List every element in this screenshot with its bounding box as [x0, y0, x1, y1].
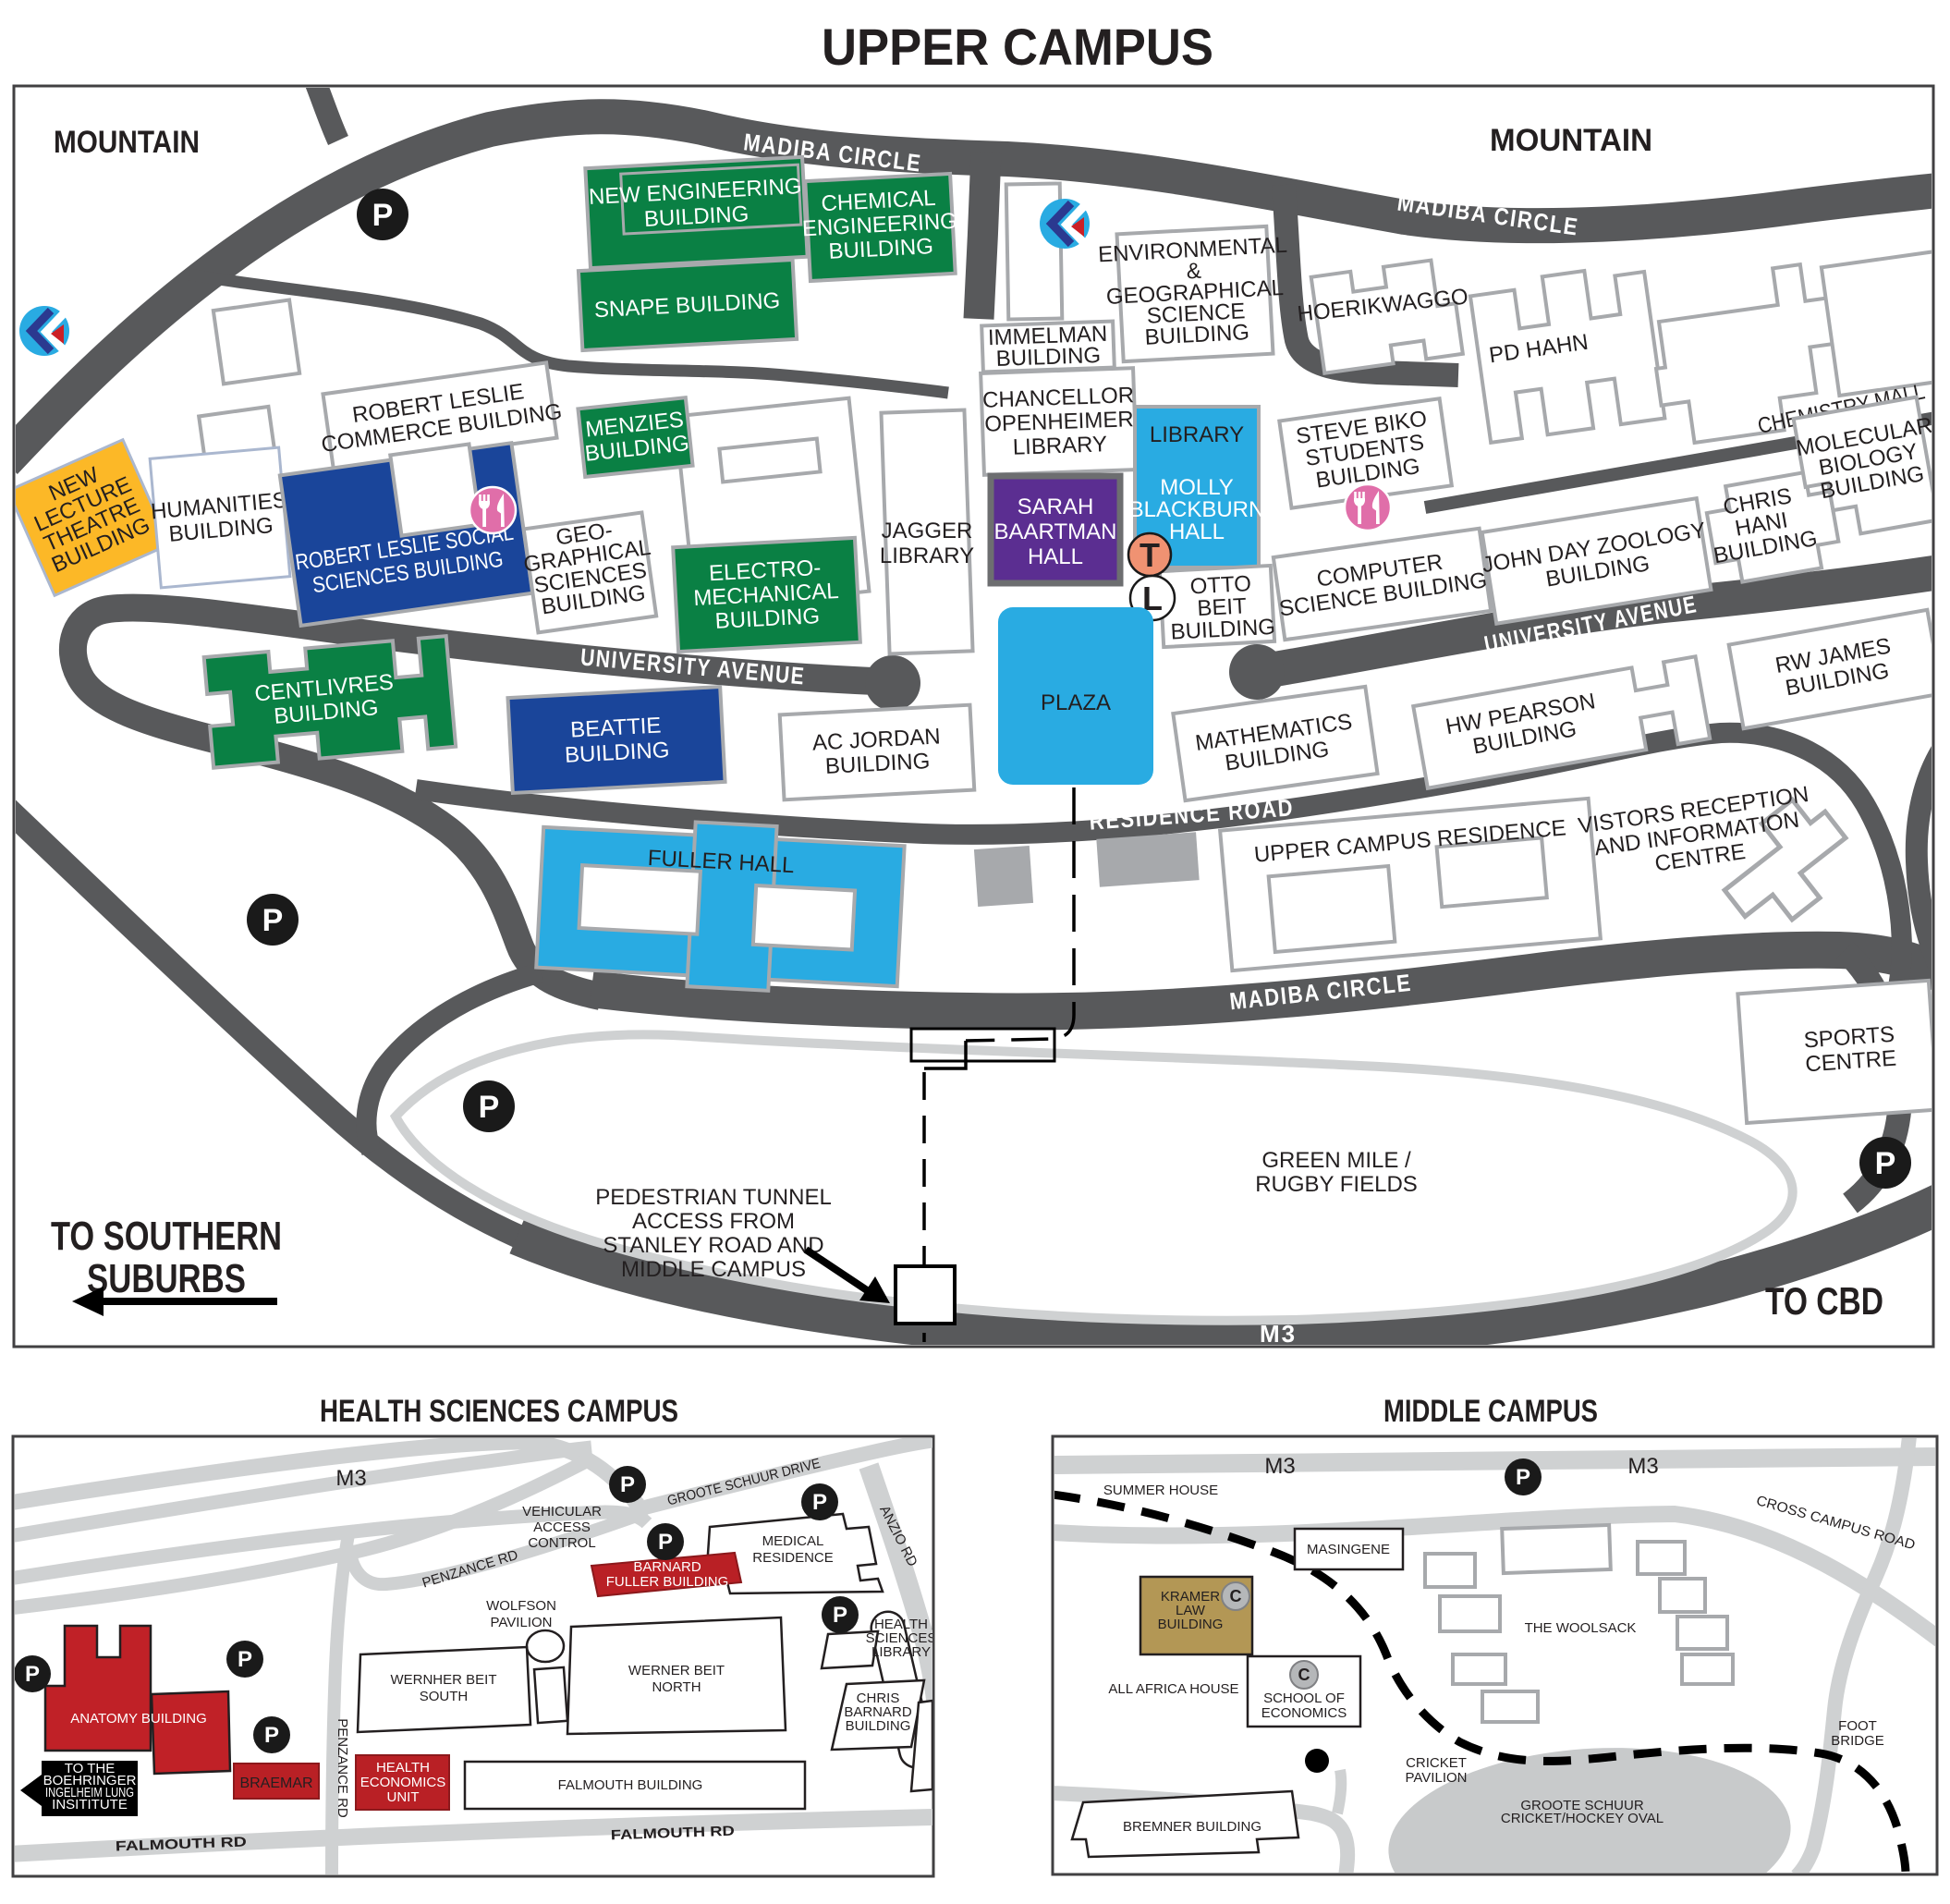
- svg-text:GREEN MILE /RUGBY FIELDS: GREEN MILE /RUGBY FIELDS: [1255, 1148, 1418, 1197]
- svg-text:WOLFSONPAVILION: WOLFSONPAVILION: [486, 1598, 556, 1630]
- svg-text:P: P: [372, 198, 394, 233]
- svg-text:VEHICULARACCESSCONTROL: VEHICULARACCESSCONTROL: [522, 1504, 602, 1551]
- svg-text:MIDDLE CAMPUS: MIDDLE CAMPUS: [1383, 1394, 1598, 1429]
- svg-text:MOUNTAIN: MOUNTAIN: [54, 125, 200, 160]
- svg-text:BEATTIEBUILDING: BEATTIEBUILDING: [563, 713, 670, 768]
- svg-text:P: P: [620, 1472, 635, 1497]
- svg-text:ANATOMY BUILDING: ANATOMY BUILDING: [70, 1711, 207, 1727]
- svg-text:P: P: [1875, 1146, 1896, 1181]
- svg-text:M3: M3: [1264, 1454, 1295, 1479]
- svg-text:P: P: [833, 1603, 847, 1628]
- svg-text:PLAZA: PLAZA: [1041, 690, 1111, 715]
- svg-text:BREMNER BUILDING: BREMNER BUILDING: [1123, 1819, 1261, 1835]
- svg-text:AC JORDANBUILDING: AC JORDANBUILDING: [811, 724, 942, 779]
- svg-text:SUMMER HOUSE: SUMMER HOUSE: [1103, 1483, 1218, 1498]
- svg-text:P: P: [658, 1530, 673, 1555]
- svg-text:M3: M3: [335, 1466, 366, 1491]
- svg-text:M3: M3: [1627, 1454, 1658, 1479]
- svg-text:JAGGERLIBRARY: JAGGERLIBRARY: [880, 519, 974, 568]
- svg-text:GROOTE SCHUURCRICKET/HOCKEY OV: GROOTE SCHUURCRICKET/HOCKEY OVAL: [1501, 1798, 1664, 1826]
- svg-text:P: P: [262, 903, 284, 938]
- svg-text:TO CBD: TO CBD: [1765, 1279, 1883, 1323]
- svg-text:UPPER CAMPUS: UPPER CAMPUS: [822, 18, 1213, 76]
- svg-text:P: P: [264, 1723, 279, 1748]
- svg-text:MASINGENE: MASINGENE: [1307, 1542, 1390, 1557]
- svg-text:MOUNTAIN: MOUNTAIN: [1490, 123, 1652, 158]
- svg-text:P: P: [25, 1662, 40, 1687]
- svg-text:SCHOOL OFECONOMICS: SCHOOL OFECONOMICS: [1261, 1690, 1347, 1721]
- svg-text:BRAEMAR: BRAEMAR: [239, 1776, 312, 1791]
- svg-text:LIBRARY: LIBRARY: [1150, 422, 1244, 447]
- svg-text:PENZANCE RD: PENZANCE RD: [335, 1718, 350, 1818]
- svg-text:P: P: [1516, 1465, 1530, 1490]
- svg-text:FOOTBRIDGE: FOOTBRIDGE: [1831, 1718, 1884, 1749]
- svg-text:IMMELMANBUILDING: IMMELMANBUILDING: [987, 322, 1108, 372]
- svg-text:SPORTSCENTRE: SPORTSCENTRE: [1803, 1022, 1897, 1078]
- svg-text:CRICKETPAVILION: CRICKETPAVILION: [1406, 1755, 1468, 1786]
- svg-text:HEALTHSCIENCESLIBRARY: HEALTHSCIENCESLIBRARY: [866, 1617, 937, 1660]
- svg-text:P: P: [479, 1090, 500, 1125]
- svg-text:T: T: [1140, 536, 1160, 574]
- svg-text:P: P: [812, 1490, 827, 1515]
- svg-text:THE WOOLSACK: THE WOOLSACK: [1525, 1620, 1637, 1636]
- svg-text:C: C: [1298, 1666, 1310, 1684]
- svg-text:M3: M3: [1260, 1320, 1297, 1348]
- svg-text:PEDESTRIAN TUNNELACCESS FROMST: PEDESTRIAN TUNNELACCESS FROMSTANLEY ROAD…: [595, 1185, 832, 1282]
- svg-text:P: P: [238, 1647, 252, 1672]
- svg-text:MEDICALRESIDENCE: MEDICALRESIDENCE: [752, 1533, 834, 1566]
- svg-text:C: C: [1230, 1587, 1242, 1605]
- svg-text:ALL AFRICA HOUSE: ALL AFRICA HOUSE: [1108, 1681, 1238, 1697]
- svg-text:HEALTH SCIENCES CAMPUS: HEALTH SCIENCES CAMPUS: [320, 1394, 678, 1429]
- svg-text:FALMOUTH BUILDING: FALMOUTH BUILDING: [558, 1777, 703, 1793]
